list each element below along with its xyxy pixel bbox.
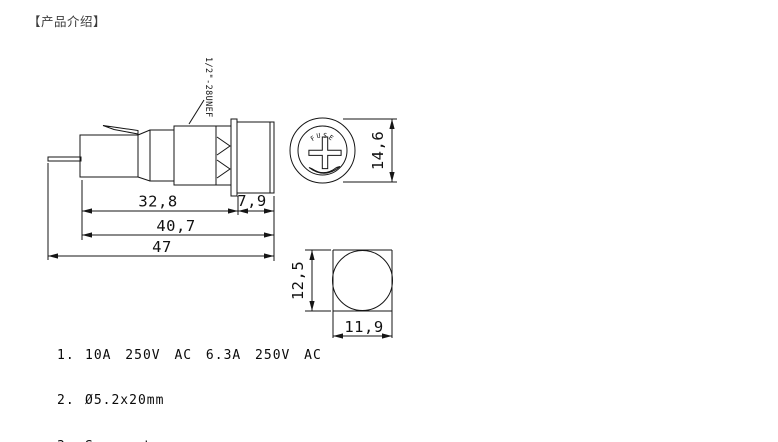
spec-item: 2. Ø5.2x20mm [57, 393, 322, 408]
hex-nut-chevrons [217, 137, 230, 178]
threaded-barrel [174, 126, 231, 185]
unscrew-arrow-band [309, 167, 340, 174]
front-view: FUSE 14,6 [290, 118, 397, 183]
spec-list: 1. 10A 250V AC 6.3A 250V AC 2. Ø5.2x20mm… [57, 318, 322, 442]
taper [138, 130, 150, 181]
knob [150, 130, 174, 181]
arrowhead [264, 253, 274, 258]
arrowhead [309, 250, 314, 260]
arrowhead [82, 232, 92, 237]
front-body [237, 122, 274, 193]
arrowhead [82, 208, 92, 213]
spec-number: 1. [57, 348, 85, 363]
spec-text: Ø5.2x20mm [85, 393, 164, 408]
side-view-dimensions: 32,8 7,9 40,7 47 [48, 163, 274, 261]
arrowhead [264, 232, 274, 237]
dim-label-bezel: 7,9 [237, 192, 267, 210]
product-intro-page: 【产品介绍】 1/2"-28UNEF [0, 0, 778, 442]
side-view: 1/2"-28UNEF [48, 57, 274, 196]
solder-tab [103, 126, 138, 135]
dim-label-hole-diameter: 12,5 [289, 261, 307, 300]
arrowhead [389, 119, 394, 129]
spec-item: 1. 10A 250V AC 6.3A 250V AC [57, 348, 322, 363]
dim-label-bezel-diameter: 14,6 [369, 131, 387, 170]
dim-label-hole-width: 11,9 [344, 318, 383, 336]
flange [231, 119, 237, 196]
arrowhead [309, 301, 314, 311]
arrowhead [333, 333, 343, 338]
rear-cap [80, 135, 138, 177]
thread-leader-line [189, 100, 204, 124]
cutout-circle [333, 251, 393, 311]
spec-text: 10A 250V AC 6.3A 250V AC [85, 348, 322, 363]
arrowhead [389, 172, 394, 182]
arrowhead [48, 253, 58, 258]
dim-label-body-front: 32,8 [138, 193, 177, 211]
dim-label-body-total: 40,7 [156, 217, 195, 235]
dim-label-overall: 47 [152, 238, 172, 256]
spec-number: 2. [57, 393, 85, 408]
dim-line-12-5 [305, 250, 331, 311]
lead-wire [48, 157, 81, 161]
thread-label: 1/2"-28UNEF [203, 57, 213, 118]
